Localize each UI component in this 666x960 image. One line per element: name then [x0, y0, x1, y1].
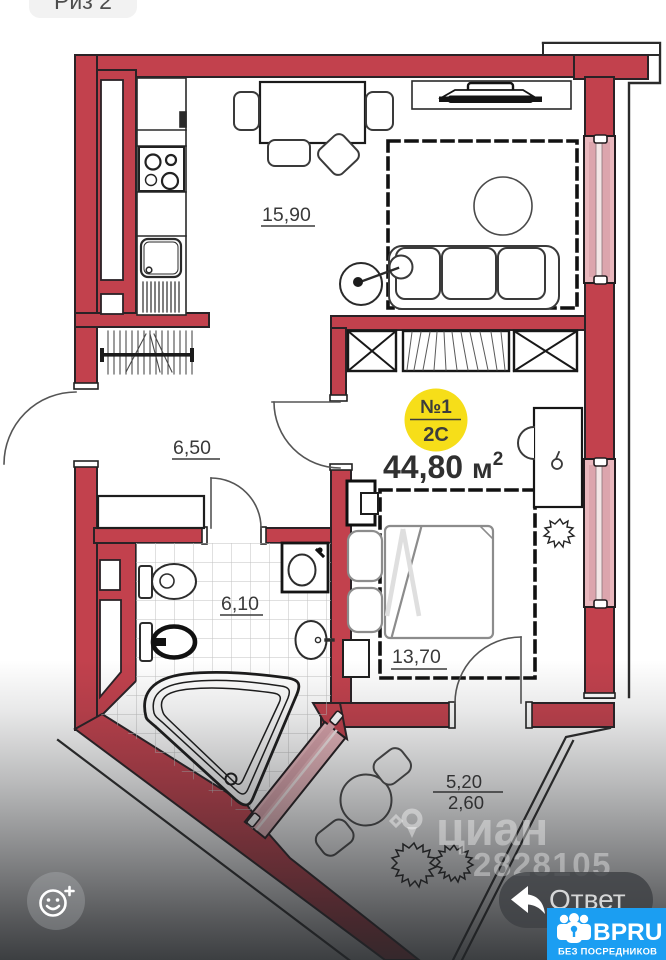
- svg-text:44,80 м2: 44,80 м2: [383, 449, 503, 485]
- svg-text:BPRU: BPRU: [593, 919, 662, 946]
- svg-text:2С: 2С: [423, 424, 449, 446]
- svg-text:6,10: 6,10: [221, 593, 259, 615]
- svg-text:БЕЗ ПОСРЕДНИКОВ: БЕЗ ПОСРЕДНИКОВ: [558, 946, 657, 957]
- svg-text:6,50: 6,50: [173, 437, 211, 459]
- svg-text:15,90: 15,90: [262, 204, 311, 226]
- svg-text:№1: №1: [420, 397, 452, 418]
